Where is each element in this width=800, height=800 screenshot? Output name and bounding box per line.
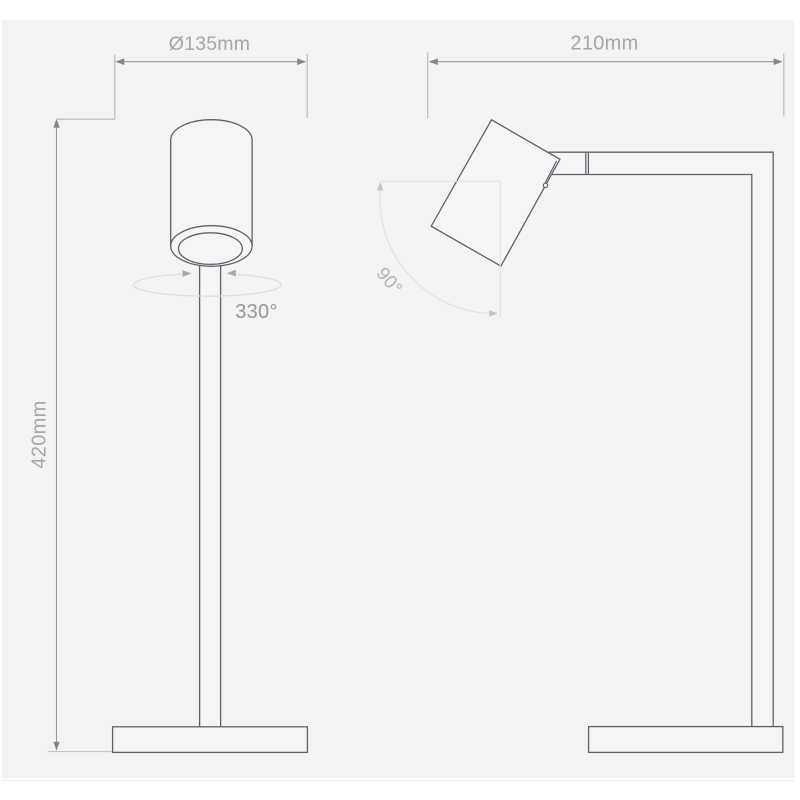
svg-text:420mm: 420mm xyxy=(29,400,51,468)
svg-text:330°: 330° xyxy=(235,301,278,323)
svg-text:210mm: 210mm xyxy=(570,33,638,55)
svg-text:Ø135mm: Ø135mm xyxy=(169,33,250,55)
